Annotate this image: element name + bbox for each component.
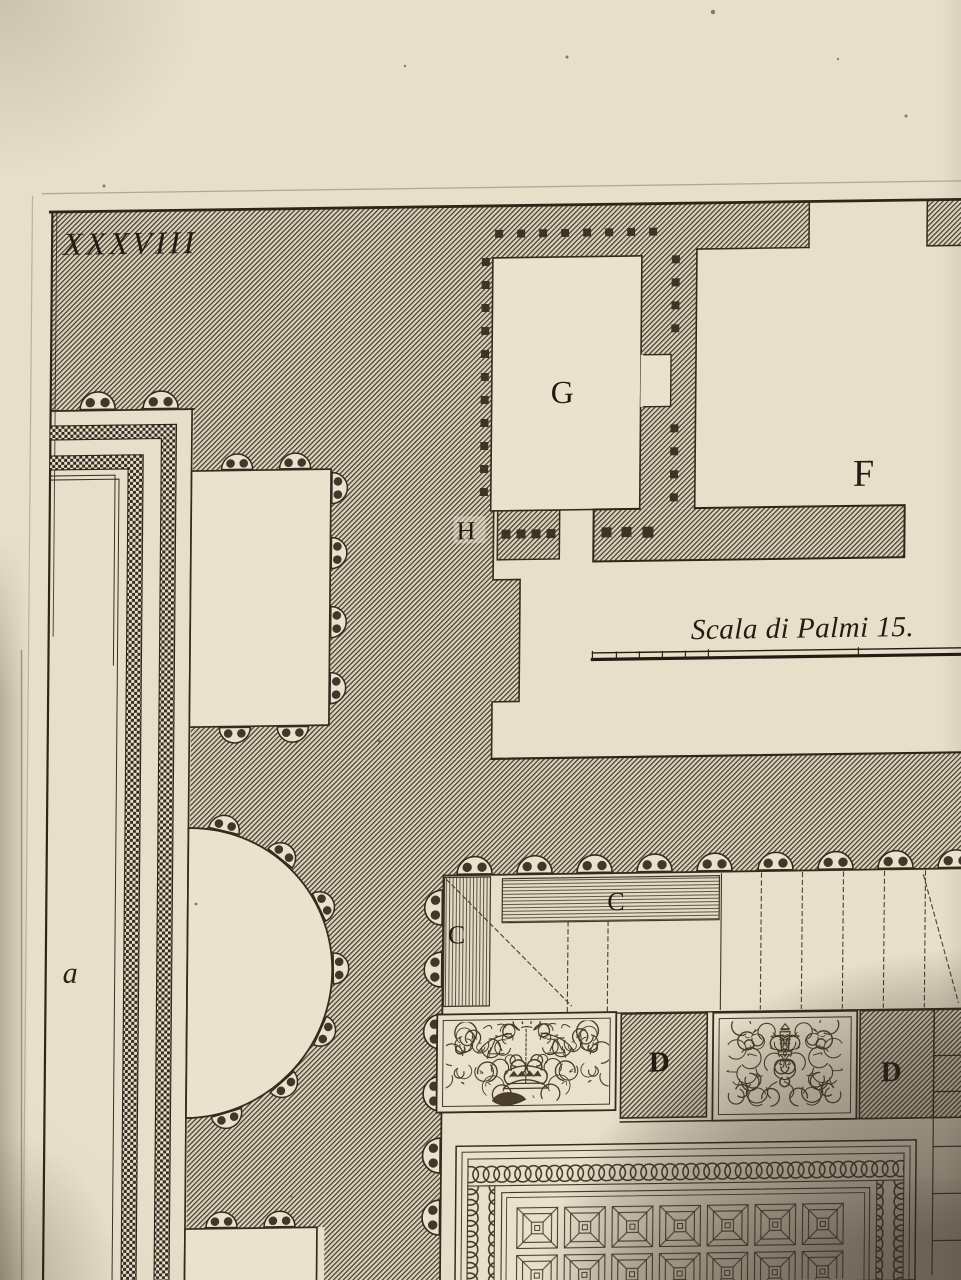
svg-text:H: H [456, 516, 475, 545]
svg-text:a: a [63, 957, 78, 990]
svg-text:D: D [649, 1046, 670, 1078]
svg-text:D: D [881, 1056, 902, 1088]
svg-text:G: G [551, 374, 574, 410]
svg-text:C: C [607, 887, 625, 916]
svg-text:F: F [853, 453, 875, 495]
svg-text:C: C [448, 920, 466, 949]
svg-text:XXXVIII: XXXVIII [61, 224, 198, 262]
svg-text:Scala di Palmi 15.: Scala di Palmi 15. [691, 611, 915, 646]
